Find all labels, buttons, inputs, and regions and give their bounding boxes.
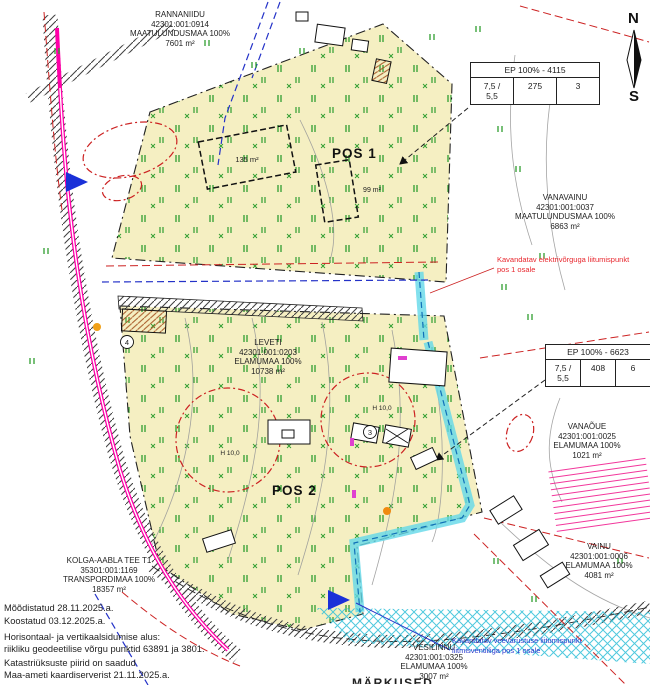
height-value-2: 5,5 xyxy=(546,373,580,383)
table-cell-area: 275 xyxy=(514,78,557,104)
annotation-line: Kavandatav veevarustuse liitumispunkt xyxy=(452,636,630,646)
pink-hatched-area xyxy=(548,453,650,534)
parcel-label-rannaniidu: RANNANIIDU 42301:001:0914 MAATULUNDUSMAA… xyxy=(100,10,260,48)
table-cell-height: 7,5 / 5,5 xyxy=(471,78,514,104)
parcel-name: KOLGA-AABLA TEE T1 xyxy=(34,556,184,566)
table-cell-height: 7,5 / 5,5 xyxy=(546,360,581,386)
parcel-label-vanavainu: VANAVAINU 42301:001:0037 MAATULUNDUSMAA … xyxy=(495,193,635,231)
planned-building-2-area: 99 m² xyxy=(363,187,382,194)
magenta-tick-3 xyxy=(398,356,407,360)
site-plan-map: 3 4 135 m² 99 m² H 10,0 H 10,0 RANNANIID… xyxy=(0,0,650,685)
parcel-name: VAINU xyxy=(548,542,650,552)
height-mark-2: H 10,0 xyxy=(372,405,392,412)
table-cell-area: 408 xyxy=(581,360,616,386)
parcel-label-vainu: VAINU 42301:001:0006 ELAMUMAA 100% 4081 … xyxy=(548,542,650,580)
parcel-landuse: ELAMUMAA 100% xyxy=(380,662,488,672)
note-boundaries-2: Maa-ameti kaardiserverist 21.11.2025.a. xyxy=(4,670,170,680)
table-header: EP 100% - 4115 xyxy=(471,63,599,78)
parcel-area: 10738 m² xyxy=(200,367,336,377)
annotation-line: pos 1 osale xyxy=(497,265,650,275)
height-mark-1: H 10,0 xyxy=(220,450,240,457)
parcel-label-vanaoue: VANAÕUE 42301:001:0025 ELAMUMAA 100% 102… xyxy=(524,422,650,460)
parcel-area: 6863 m² xyxy=(495,222,635,232)
electric-connection-annotation: Kavandatav elektrivõrguga liitumispunkt … xyxy=(497,255,650,275)
circled-4: 4 xyxy=(125,338,129,347)
parcel-name: RANNANIIDU xyxy=(100,10,260,20)
parcel-name: VANAÕUE xyxy=(524,422,650,432)
parcel-landuse: MAATULUNDUSMAA 100% xyxy=(495,212,635,222)
parcel-cadastral: 42301:001:0006 xyxy=(548,552,650,562)
parcel-landuse: TRANSPORDIMAA 100% xyxy=(34,575,184,585)
height-value-1: 7,5 / xyxy=(471,81,513,91)
note-datum-1: Horisontaal- ja vertikaalsidumise alus: xyxy=(4,632,160,642)
building-rights-table-pos2: EP 100% - 6623 7,5 / 5,5 408 6 xyxy=(545,344,650,387)
water-connection-annotation: Kavandatav veevarustuse liitumispunkt li… xyxy=(452,636,630,656)
table-header: EP 100% - 6623 xyxy=(546,345,650,360)
note-measured-date: Mõõdistatud 28.11.2025.a. xyxy=(4,603,113,613)
parcel-name: LEVETI xyxy=(200,338,336,348)
note-compiled-date: Koostatud 03.12.2025.a. xyxy=(4,616,105,626)
compass-south-label: S xyxy=(629,88,639,105)
parcel-landuse: ELAMUMAA 100% xyxy=(200,357,336,367)
parcel-label-kolga-aabla-tee: KOLGA-AABLA TEE T1 35301:001:1169 TRANSP… xyxy=(34,556,184,594)
table-cell-count: 6 xyxy=(616,360,650,386)
pos1-label: POS 1 xyxy=(332,146,377,161)
parcel-cadastral: 42301:001:0037 xyxy=(495,203,635,213)
magenta-tick-1 xyxy=(350,438,354,446)
compass-north-label: N xyxy=(628,10,639,27)
parcel-landuse: MAATULUNDUSMAA 100% xyxy=(100,29,260,39)
parcel-area: 4081 m² xyxy=(548,571,650,581)
parcel-landuse: ELAMUMAA 100% xyxy=(524,441,650,451)
parcel-name: VANAVAINU xyxy=(495,193,635,203)
annotation-line: liitmisventiiliga pos 1 osale xyxy=(452,646,630,656)
parcel-label-leveti: LEVETI 42301:001:0203 ELAMUMAA 100% 1073… xyxy=(200,338,336,376)
orange-marker-2 xyxy=(93,323,101,331)
parcel-area: 7601 m² xyxy=(100,39,260,49)
parcel-landuse: ELAMUMAA 100% xyxy=(548,561,650,571)
parcel-cadastral: 42301:001:0203 xyxy=(200,348,336,358)
annotation-line: Kavandatav elektrivõrguga liitumispunkt xyxy=(497,255,650,265)
parcel-cadastral: 42301:001:0914 xyxy=(100,20,260,30)
note-boundaries-1: Katastriüksuste piirid on saadud xyxy=(4,658,136,668)
circled-3: 3 xyxy=(368,428,372,437)
planned-building-1-area: 135 m² xyxy=(235,155,259,164)
building-rights-table-pos1: EP 100% - 4115 7,5 / 5,5 275 3 xyxy=(470,62,600,105)
pos2-label: POS 2 xyxy=(272,483,317,498)
parcel-cadastral: 35301:001:1169 xyxy=(34,566,184,576)
magenta-tick-2 xyxy=(352,490,356,498)
table-cell-count: 3 xyxy=(557,78,599,104)
parcel-area: 1021 m² xyxy=(524,451,650,461)
parcel-area: 18357 m² xyxy=(34,585,184,595)
orange-marker-1 xyxy=(383,507,391,515)
parcel-cadastral: 42301:001:0025 xyxy=(524,432,650,442)
note-datum-2: riikliku geodeetilise võrgu punktid 6389… xyxy=(4,644,205,654)
height-value-1: 7,5 / xyxy=(546,363,580,373)
height-value-2: 5,5 xyxy=(471,91,513,101)
bottom-heading-partial: MÄRKUSED xyxy=(352,676,472,684)
